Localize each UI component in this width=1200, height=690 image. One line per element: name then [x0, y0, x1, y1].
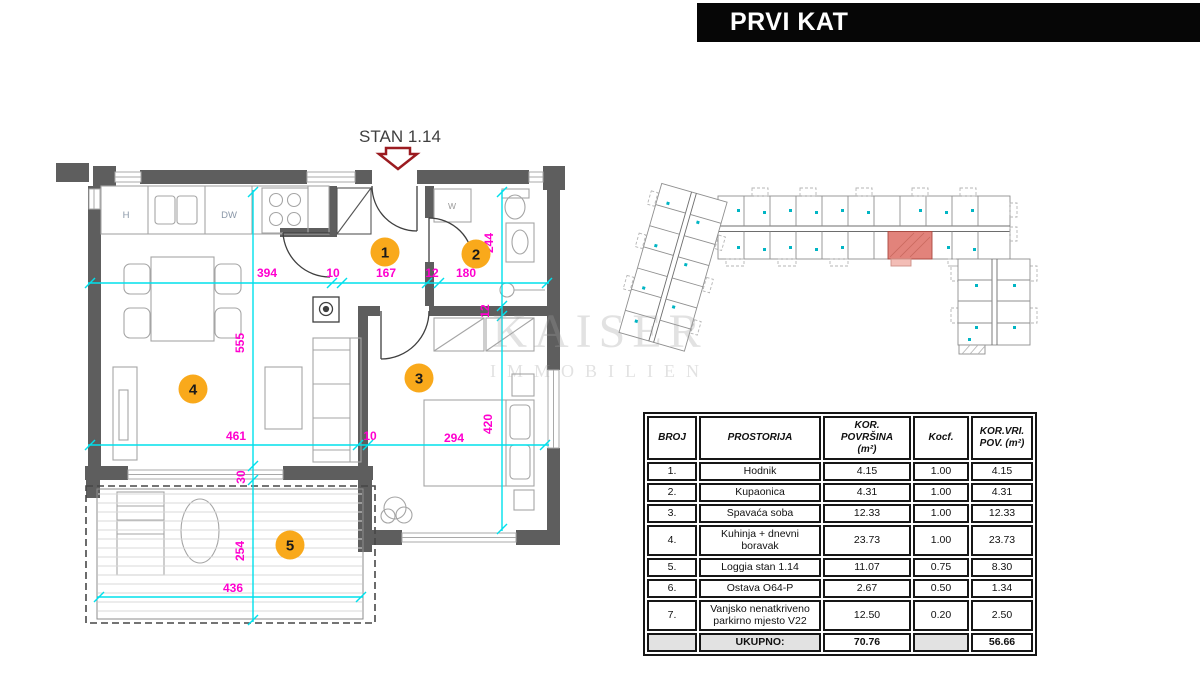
unit-dot [737, 246, 740, 249]
table-row: 1.Hodnik4.151.004.15 [647, 462, 1033, 481]
dimension-label: 167 [376, 266, 396, 280]
highlighted-unit [888, 232, 932, 267]
unit-dot [973, 248, 976, 251]
table-row: 3.Spavaća soba12.331.0012.33 [647, 504, 1033, 523]
table-cell: 4.31 [823, 483, 911, 502]
areas-table-body: 1.Hodnik4.151.004.152.Kupaonica4.311.004… [647, 462, 1033, 652]
table-cell: 4.15 [971, 462, 1033, 481]
table-total-row: UKUPNO:70.7656.66 [647, 633, 1033, 652]
table-row: 7.Vanjsko nenatkriveno parkirno mjesto V… [647, 600, 1033, 631]
table-cell: Kupaonica [699, 483, 821, 502]
dishwasher-label: DW [221, 210, 237, 221]
table-cell: 6. [647, 579, 697, 598]
table-cell: 7. [647, 600, 697, 631]
dimension-label: 10 [363, 429, 377, 443]
table-total-cell [647, 633, 697, 652]
table-cell: 3. [647, 504, 697, 523]
dimension-label: 420 [481, 414, 495, 434]
room-marker-number: 4 [189, 382, 198, 399]
dimension-label: 12 [425, 266, 439, 280]
table-cell: 4.31 [971, 483, 1033, 502]
unit-dot [975, 284, 978, 287]
table-total-cell: UKUPNO: [699, 633, 821, 652]
table-header-cell: KOR. POVRŠINA (m²) [823, 416, 911, 460]
table-total-cell: 70.76 [823, 633, 911, 652]
table-cell: 12.33 [823, 504, 911, 523]
unit-title: STAN 1.14 [359, 127, 441, 146]
unit-dot [975, 326, 978, 329]
entry-arrow-icon [379, 148, 417, 169]
table-header-cell: PROSTORIJA [699, 416, 821, 460]
room-marker-number: 2 [472, 247, 480, 264]
table-cell: Ostava O64-P [699, 579, 821, 598]
dimension-label: 461 [226, 429, 246, 443]
table-cell: 5. [647, 558, 697, 577]
unit-dot [789, 246, 792, 249]
table-cell: 1.34 [971, 579, 1033, 598]
dimension-label: 254 [233, 541, 247, 561]
room-marker-number: 3 [415, 371, 423, 388]
table-cell: Vanjsko nenatkriveno parkirno mjesto V22 [699, 600, 821, 631]
table-cell: 8.30 [971, 558, 1033, 577]
hood-label: H [123, 210, 130, 221]
unit-dot [841, 209, 844, 212]
unit-dot [945, 211, 948, 214]
unit-dot [867, 211, 870, 214]
dimension-label: 394 [257, 266, 277, 280]
left-wing [611, 181, 734, 353]
areas-table: BROJPROSTORIJAKOR. POVRŠINA (m²)Kocf.KOR… [643, 412, 1037, 656]
table-cell: 23.73 [971, 525, 1033, 556]
table-cell: Spavaća soba [699, 504, 821, 523]
table-header-cell: BROJ [647, 416, 697, 460]
areas-table-head: BROJPROSTORIJAKOR. POVRŠINA (m²)Kocf.KOR… [647, 416, 1033, 460]
washer-label: W [448, 201, 456, 211]
floor-banner-title: PRVI KAT [730, 8, 848, 37]
unit-dot [968, 338, 971, 341]
unit-dot [763, 211, 766, 214]
table-cell: 11.07 [823, 558, 911, 577]
table-header-cell: Kocf. [913, 416, 969, 460]
unit-dot [841, 246, 844, 249]
table-cell: Loggia stan 1.14 [699, 558, 821, 577]
dimension-label: 294 [444, 431, 464, 445]
dimension-label: 30 [234, 470, 248, 484]
unit-dot [1013, 284, 1016, 287]
table-cell: 1.00 [913, 504, 969, 523]
table-cell: 2. [647, 483, 697, 502]
table-row: 6.Ostava O64-P2.670.501.34 [647, 579, 1033, 598]
unit-dot [789, 209, 792, 212]
unit-dot [971, 209, 974, 212]
unit-dot [763, 248, 766, 251]
unit-dot [737, 209, 740, 212]
dimension-label: 10 [326, 266, 340, 280]
table-cell: 1.00 [913, 483, 969, 502]
room-marker-number: 1 [381, 245, 389, 262]
table-cell: 1.00 [913, 462, 969, 481]
table-cell: 2.67 [823, 579, 911, 598]
table-cell: 4.15 [823, 462, 911, 481]
table-row: 2.Kupaonica4.311.004.31 [647, 483, 1033, 502]
table-cell: Kuhinja + dnevni boravak [699, 525, 821, 556]
room-marker-number: 5 [286, 538, 294, 555]
table-cell: 23.73 [823, 525, 911, 556]
dimension-label: 12 [478, 304, 492, 318]
floor-banner: PRVI KAT [697, 3, 1200, 42]
unit-dot [1013, 326, 1016, 329]
table-cell: Hodnik [699, 462, 821, 481]
dimension-label: 436 [223, 581, 243, 595]
table-row: 4.Kuhinja + dnevni boravak23.731.0023.73 [647, 525, 1033, 556]
table-cell: 0.50 [913, 579, 969, 598]
table-cell: 12.50 [823, 600, 911, 631]
room-markers: 12345 [179, 238, 491, 560]
table-cell: 2.50 [971, 600, 1033, 631]
table-header-cell: KOR.VRI. POV. (m²) [971, 416, 1033, 460]
table-row: 5.Loggia stan 1.1411.070.758.30 [647, 558, 1033, 577]
building-overview [611, 181, 1037, 354]
table-cell: 0.75 [913, 558, 969, 577]
table-cell: 1. [647, 462, 697, 481]
table-cell: 12.33 [971, 504, 1033, 523]
table-cell: 1.00 [913, 525, 969, 556]
dimension-label: 555 [233, 333, 247, 353]
unit-dot [947, 246, 950, 249]
page: { "banner": { "title": "PRVI KAT" }, "wa… [0, 0, 1200, 690]
table-total-cell [913, 633, 969, 652]
table-total-cell: 56.66 [971, 633, 1033, 652]
unit-dot [815, 248, 818, 251]
table-cell: 4. [647, 525, 697, 556]
table-cell: 0.20 [913, 600, 969, 631]
unit-dot [815, 211, 818, 214]
unit-dot [919, 209, 922, 212]
